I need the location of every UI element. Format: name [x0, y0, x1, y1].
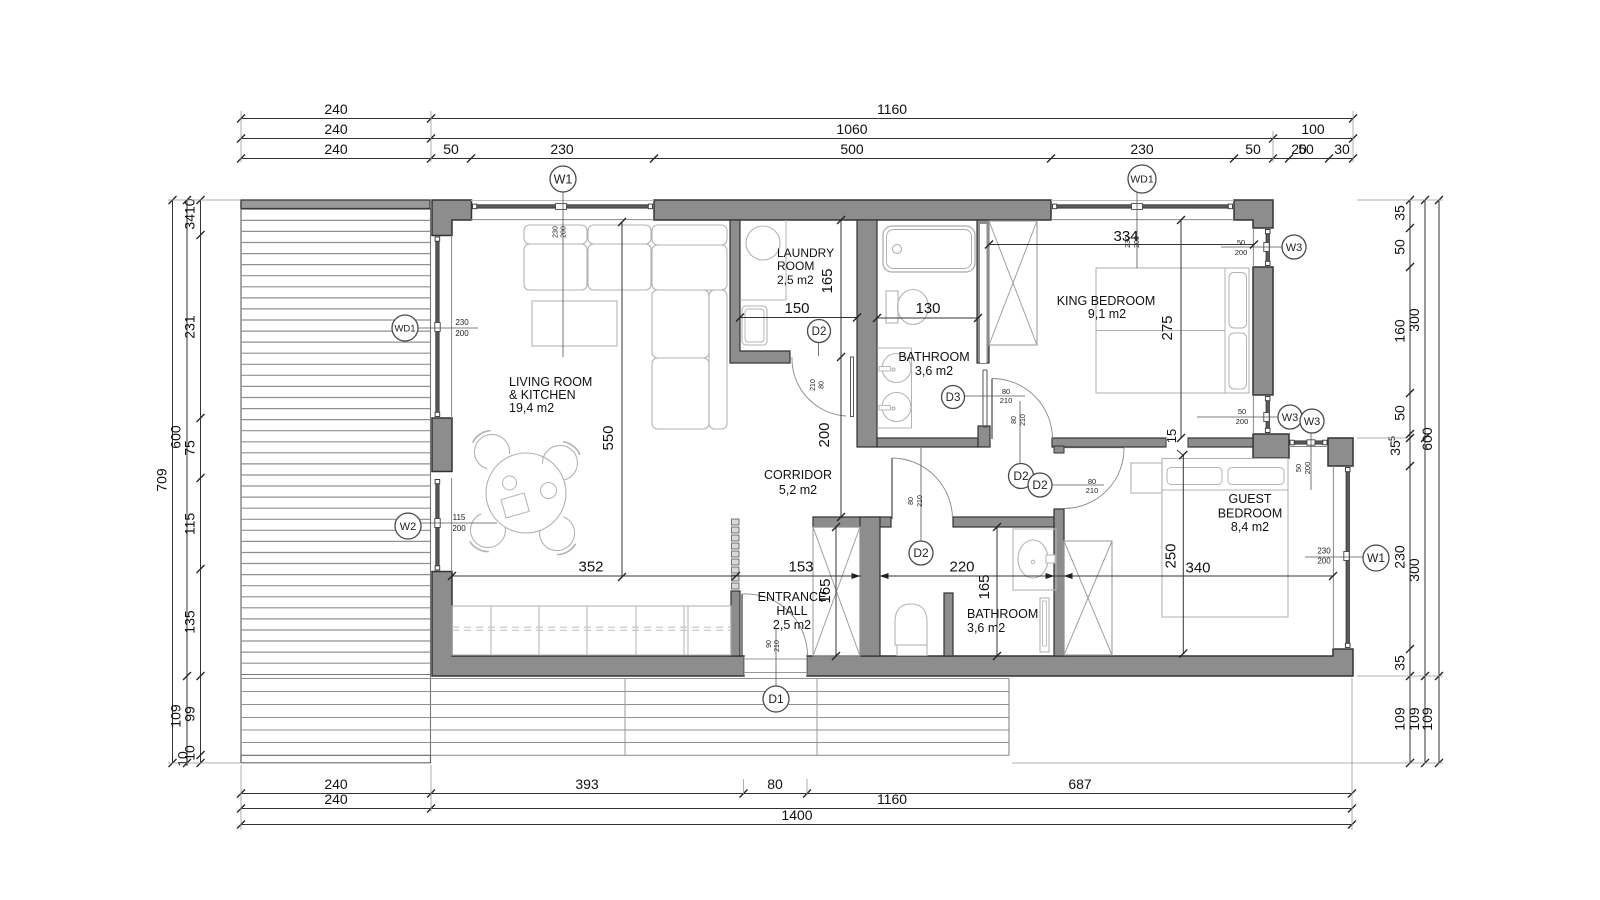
svg-text:19,4 m2: 19,4 m2 [509, 401, 554, 415]
svg-text:1060: 1060 [836, 121, 867, 137]
svg-text:80: 80 [819, 381, 826, 389]
svg-text:D2: D2 [1032, 478, 1048, 492]
svg-text:99: 99 [182, 706, 198, 722]
svg-text:115: 115 [453, 513, 466, 522]
svg-text:8,4 m2: 8,4 m2 [1231, 520, 1269, 534]
svg-text:50: 50 [1392, 405, 1408, 421]
svg-text:1160: 1160 [877, 101, 907, 117]
svg-text:30: 30 [1334, 141, 1350, 157]
svg-text:35: 35 [1387, 440, 1403, 456]
svg-text:200: 200 [1134, 236, 1141, 248]
svg-text:1400: 1400 [781, 807, 812, 823]
svg-text:W1: W1 [1367, 551, 1385, 565]
svg-text:200: 200 [1317, 557, 1331, 566]
svg-text:50: 50 [1238, 407, 1246, 416]
svg-text:9,1 m2: 9,1 m2 [1088, 307, 1126, 321]
svg-text:600: 600 [1419, 427, 1435, 451]
svg-text:240: 240 [324, 101, 348, 117]
svg-text:35: 35 [1392, 655, 1408, 671]
svg-text:100: 100 [1301, 121, 1325, 137]
svg-text:230: 230 [455, 318, 469, 327]
svg-text:50: 50 [1245, 141, 1261, 157]
svg-text:130: 130 [915, 300, 940, 317]
svg-text:300: 300 [1406, 558, 1422, 582]
svg-text:200: 200 [455, 329, 469, 338]
svg-text:275: 275 [1159, 315, 1176, 340]
svg-text:3410: 3410 [182, 198, 198, 229]
svg-text:W3: W3 [1304, 416, 1321, 428]
svg-text:153: 153 [788, 559, 813, 576]
svg-text:WD1: WD1 [1130, 174, 1153, 186]
svg-text:210: 210 [810, 379, 817, 391]
svg-text:D1: D1 [768, 692, 784, 706]
svg-text:15: 15 [1164, 429, 1179, 443]
svg-text:50: 50 [1237, 238, 1245, 247]
svg-text:240: 240 [324, 121, 348, 137]
svg-text:10: 10 [175, 751, 191, 767]
svg-text:230: 230 [550, 141, 574, 157]
svg-text:90: 90 [766, 640, 773, 648]
svg-text:165: 165 [976, 574, 993, 599]
svg-text:135: 135 [182, 610, 198, 634]
svg-text:WD1: WD1 [394, 323, 415, 334]
svg-text:GUEST: GUEST [1228, 492, 1271, 506]
svg-text:500: 500 [840, 141, 864, 157]
svg-text:50: 50 [1298, 141, 1314, 157]
svg-text:50: 50 [1392, 239, 1408, 255]
svg-text:80: 80 [908, 497, 915, 505]
svg-text:2,5 m2: 2,5 m2 [777, 273, 814, 287]
svg-text:393: 393 [575, 776, 599, 792]
svg-text:550: 550 [600, 425, 617, 450]
svg-text:230: 230 [553, 226, 560, 238]
svg-text:250: 250 [1163, 543, 1180, 568]
svg-text:CORRIDOR: CORRIDOR [764, 468, 832, 482]
svg-text:109: 109 [1419, 707, 1435, 731]
svg-text:210: 210 [1000, 396, 1013, 405]
svg-text:200: 200 [561, 226, 568, 238]
svg-text:115: 115 [182, 513, 198, 536]
svg-text:340: 340 [1185, 560, 1210, 577]
svg-text:230: 230 [1125, 236, 1132, 248]
svg-text:2,5 m2: 2,5 m2 [773, 618, 811, 632]
svg-text:BATHROOM: BATHROOM [967, 607, 1038, 621]
svg-text:230: 230 [1130, 141, 1154, 157]
svg-text:352: 352 [578, 559, 603, 576]
svg-text:3,6 m2: 3,6 m2 [967, 621, 1005, 635]
svg-text:5,2 m2: 5,2 m2 [779, 483, 817, 497]
svg-text:D2: D2 [812, 326, 827, 338]
svg-text:210: 210 [1086, 486, 1099, 495]
svg-text:D2: D2 [1013, 469, 1029, 483]
svg-text:KING BEDROOM: KING BEDROOM [1057, 294, 1156, 308]
svg-text:200: 200 [1235, 248, 1248, 257]
svg-text:75: 75 [182, 440, 198, 456]
svg-text:165: 165 [817, 578, 834, 603]
svg-text:240: 240 [324, 776, 348, 792]
svg-text:35: 35 [1392, 205, 1408, 221]
svg-text:LAUNDRY: LAUNDRY [777, 246, 834, 260]
svg-text:150: 150 [784, 300, 809, 317]
svg-text:1160: 1160 [877, 791, 907, 807]
svg-text:200: 200 [816, 422, 833, 447]
svg-text:& KITCHEN: & KITCHEN [509, 388, 576, 402]
svg-text:W3: W3 [1282, 412, 1299, 424]
svg-text:210: 210 [774, 640, 781, 652]
svg-text:ROOM: ROOM [777, 259, 814, 273]
svg-text:LIVING ROOM: LIVING ROOM [509, 375, 592, 389]
svg-text:220: 220 [949, 559, 974, 576]
svg-text:300: 300 [1406, 308, 1422, 332]
svg-text:709: 709 [154, 468, 170, 492]
svg-text:50: 50 [1294, 464, 1303, 472]
svg-text:200: 200 [1236, 417, 1249, 426]
svg-text:D3: D3 [946, 392, 961, 404]
svg-text:W1: W1 [554, 172, 573, 186]
svg-text:BATHROOM: BATHROOM [898, 350, 969, 364]
svg-text:W3: W3 [1286, 242, 1303, 254]
svg-text:3,6 m2: 3,6 m2 [915, 364, 953, 378]
svg-text:687: 687 [1068, 776, 1092, 792]
svg-text:240: 240 [324, 141, 348, 157]
svg-text:80: 80 [1002, 387, 1010, 396]
svg-text:80: 80 [1088, 477, 1096, 486]
svg-text:230: 230 [1317, 547, 1331, 556]
svg-text:80: 80 [767, 776, 783, 792]
svg-text:210: 210 [917, 495, 924, 507]
svg-text:200: 200 [1303, 462, 1312, 475]
svg-text:165: 165 [819, 268, 836, 293]
svg-text:BEDROOM: BEDROOM [1218, 507, 1283, 521]
svg-text:D2: D2 [913, 546, 929, 560]
svg-text:240: 240 [324, 791, 348, 807]
svg-text:231: 231 [182, 315, 198, 339]
svg-text:50: 50 [443, 141, 459, 157]
svg-text:W2: W2 [400, 521, 417, 533]
svg-text:200: 200 [452, 524, 466, 533]
svg-text:HALL: HALL [776, 604, 807, 618]
svg-text:80: 80 [1011, 416, 1018, 424]
svg-text:210: 210 [1020, 414, 1027, 426]
